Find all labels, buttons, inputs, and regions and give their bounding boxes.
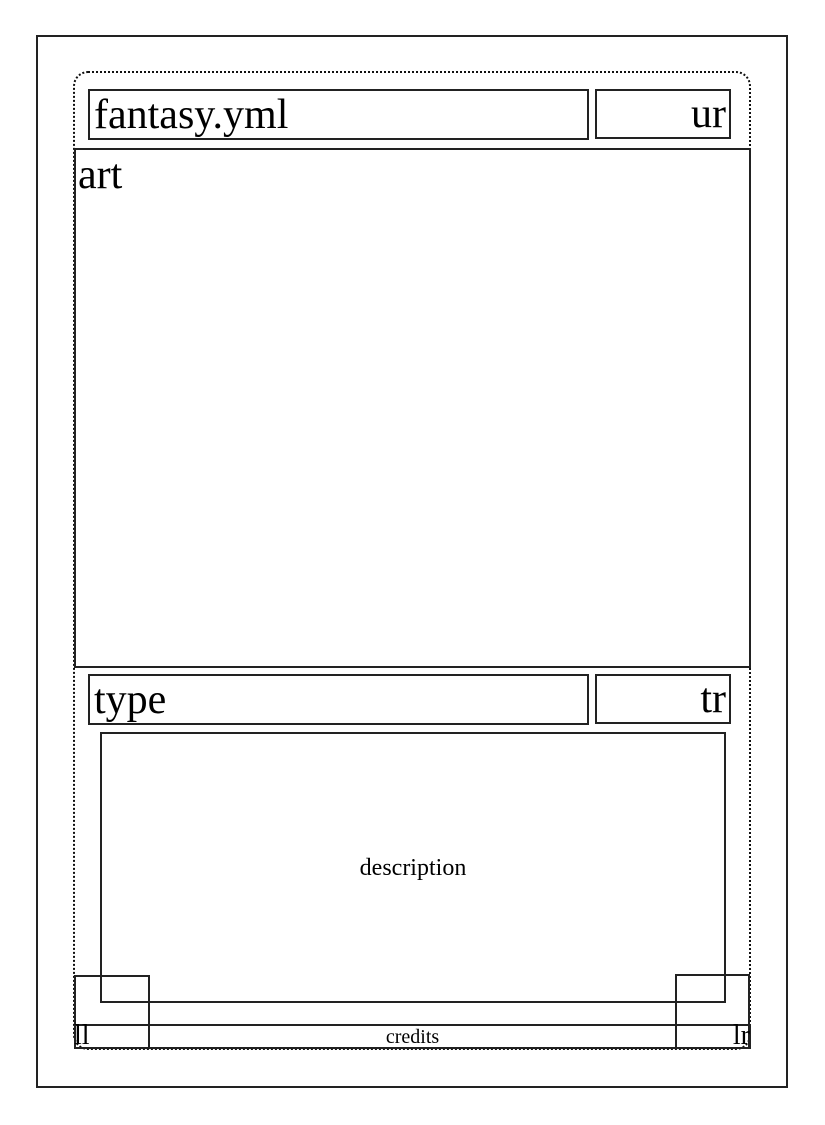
lower-right-label: lr bbox=[660, 1022, 750, 1050]
art-box: art bbox=[74, 148, 751, 668]
upper-right-box: ur bbox=[595, 89, 731, 139]
upper-right-label: ur bbox=[691, 92, 726, 136]
credits-label: credits bbox=[386, 1026, 439, 1048]
description-box: description bbox=[100, 732, 726, 1003]
type-label: type bbox=[94, 678, 166, 722]
title-label: fantasy.yml bbox=[94, 93, 288, 137]
type-right-label: tr bbox=[700, 677, 726, 721]
type-box: type bbox=[88, 674, 589, 725]
card-layout-proof-sheet: fantasy.yml ur art type tr description c… bbox=[0, 0, 825, 1125]
type-right-box: tr bbox=[595, 674, 731, 724]
description-label: description bbox=[360, 855, 467, 881]
credits-bar: credits bbox=[74, 1024, 751, 1049]
art-label: art bbox=[78, 153, 122, 197]
lower-left-label: ll bbox=[74, 1022, 164, 1050]
title-box: fantasy.yml bbox=[88, 89, 589, 140]
